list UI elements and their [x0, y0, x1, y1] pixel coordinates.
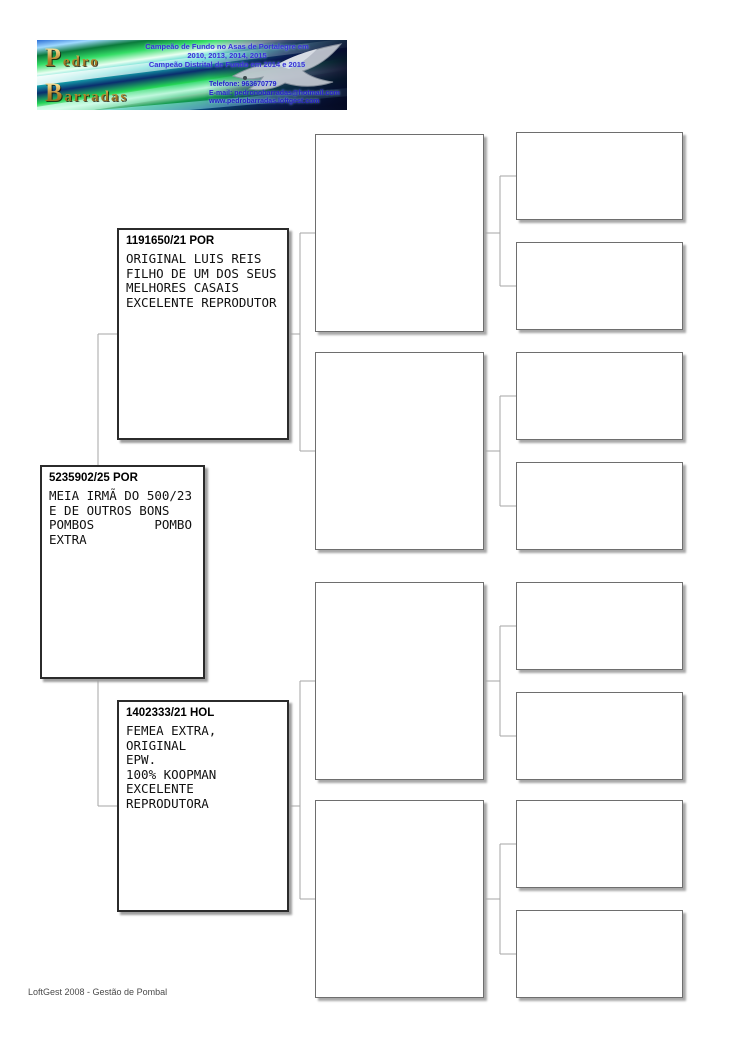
ancestor-box-gen4-8 [516, 910, 683, 998]
ancestor-box-gen4-5 [516, 582, 683, 670]
dam-bird-box: 1402333/21 HOL FEMEA EXTRA, ORIGINAL EPW… [117, 700, 289, 912]
subject-notes: MEIA IRMÃ DO 500/23 E DE OUTROS BONS POM… [49, 489, 196, 547]
ancestor-box-gen4-6 [516, 692, 683, 780]
ancestor-box-gen4-3 [516, 352, 683, 440]
dam-ring-number: 1402333/21 HOL [126, 707, 280, 719]
sire-notes: ORIGINAL LUIS REIS FILHO DE UM DOS SEUS … [126, 252, 280, 310]
subject-ring-number: 5235902/25 POR [49, 472, 196, 484]
pedigree-report-page: Pedro Barradas Campeão de Fundo no Asas … [0, 0, 750, 1059]
ancestor-box-gen3-3 [315, 582, 484, 780]
ancestor-box-gen3-1 [315, 134, 484, 332]
dam-notes: FEMEA EXTRA, ORIGINAL EPW. 100% KOOPMAN … [126, 724, 280, 811]
ancestor-box-gen3-4 [315, 800, 484, 998]
sire-ring-number: 1191650/21 POR [126, 235, 280, 247]
ancestor-box-gen4-4 [516, 462, 683, 550]
ancestor-box-gen3-2 [315, 352, 484, 550]
footer-app-label: LoftGest 2008 - Gestão de Pombal [28, 987, 167, 997]
ancestor-box-gen4-7 [516, 800, 683, 888]
ancestor-box-gen4-1 [516, 132, 683, 220]
sire-bird-box: 1191650/21 POR ORIGINAL LUIS REIS FILHO … [117, 228, 289, 440]
subject-bird-box: 5235902/25 POR MEIA IRMÃ DO 500/23 E DE … [40, 465, 205, 679]
ancestor-box-gen4-2 [516, 242, 683, 330]
